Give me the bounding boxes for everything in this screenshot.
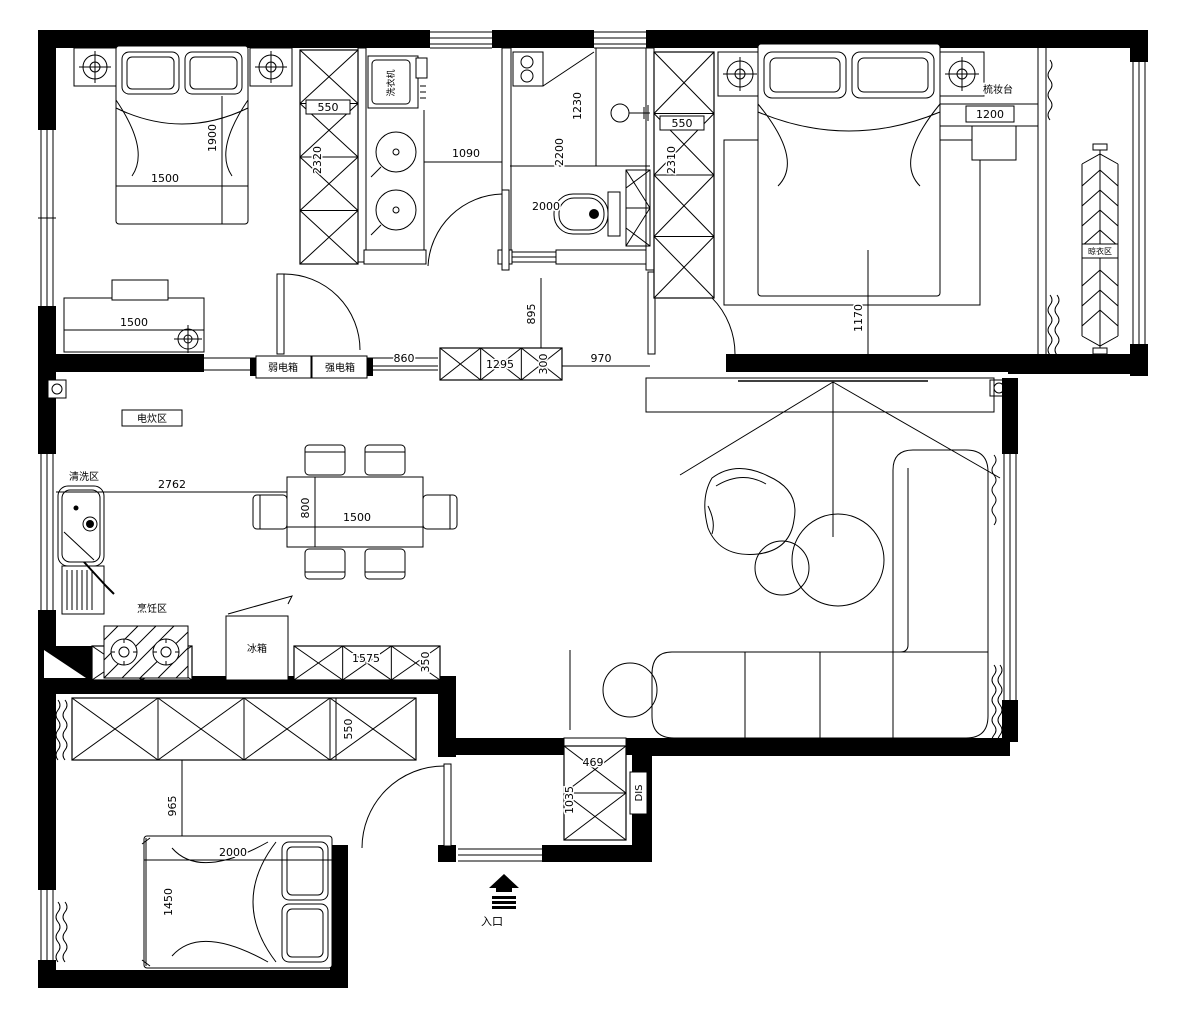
dim-hall-cabinet: 1295	[486, 358, 514, 371]
laundry-tub	[371, 190, 416, 235]
dim-wardrobe1-length: 2320	[311, 146, 324, 174]
wardrobe2	[654, 52, 714, 298]
strong-current-box-label: 强电箱	[325, 361, 355, 374]
dim-hall-c: 895	[525, 304, 538, 325]
balcony: 晾衣区	[1048, 60, 1118, 355]
dining-chair	[423, 495, 457, 529]
floor-plan-drawing: 1500 1900 1500 550 2320 洗衣机	[0, 0, 1200, 1014]
dis-label: DIS	[634, 785, 645, 802]
laundry-door	[428, 190, 509, 270]
dim-kitchen-span: 2762	[158, 478, 186, 491]
bathroom: 1230 2200 2000	[513, 52, 650, 246]
laundry-room: 洗衣机 1090	[368, 56, 509, 270]
kitchen-sink	[58, 486, 104, 566]
fridge: 冰箱	[226, 596, 292, 680]
floor-plan-page: 1500 1900 1500 550 2320 洗衣机	[0, 0, 1200, 1014]
dining-chair	[365, 445, 405, 475]
double-bed	[758, 44, 940, 296]
dining-area: 800 1500	[253, 445, 457, 579]
dim-wardrobe2-length: 2310	[665, 146, 678, 174]
dim-bed2-side: 1170	[852, 304, 865, 332]
side-table	[603, 663, 657, 717]
living-room	[570, 378, 1008, 745]
bedroom1-door	[277, 274, 360, 354]
dim-room3-gap: 965	[166, 796, 179, 817]
desk: 1500	[64, 280, 204, 353]
curtain-squiggle	[1048, 295, 1052, 355]
curtain-squiggle	[56, 700, 60, 760]
laundry-tub	[371, 132, 416, 177]
weak-current-box-label: 弱电箱	[268, 361, 298, 374]
dining-chair	[305, 445, 345, 475]
dim-table-depth: 800	[299, 498, 312, 519]
curtain-squiggle	[63, 902, 67, 962]
wash-basin	[513, 52, 594, 86]
dim-dresser-width: 1200	[976, 108, 1004, 121]
dim-entry-cabinet-w: 469	[583, 756, 604, 769]
drying-rack: 晾衣区	[1082, 144, 1118, 354]
drying-area-label: 晾衣区	[1088, 246, 1112, 256]
dining-table: 800 1500	[287, 477, 423, 547]
dim-bed3-length: 2000	[219, 846, 247, 859]
shower-head-icon	[611, 104, 650, 122]
washing-area-label: 清洗区	[69, 470, 99, 483]
dim-bath-depth: 2200	[553, 138, 566, 166]
entrance-label: 入口	[481, 915, 503, 928]
wardrobe1	[300, 50, 358, 264]
dim-entry-cabinet-h: 1035	[563, 786, 576, 814]
wardrobe3	[72, 698, 416, 760]
bedroom3-door	[362, 764, 451, 848]
curtain-squiggle	[1048, 60, 1052, 120]
tv-cabinet	[646, 378, 1008, 537]
dim-bath-width: 2000	[532, 200, 560, 213]
curtain-squiggle	[992, 455, 996, 525]
dim-table-width: 1500	[343, 511, 371, 524]
dim-cabinet2-depth: 350	[419, 652, 432, 673]
curtain-squiggle	[63, 700, 67, 760]
dim-desk-width: 1500	[120, 316, 148, 329]
dim-hall-b: 970	[591, 352, 612, 365]
dim-bed1-width: 1500	[151, 172, 179, 185]
dining-chair	[365, 549, 405, 579]
bedroom3: 965 2000 1450	[56, 760, 332, 968]
cutting-board	[62, 562, 114, 614]
washing-machine-label: 洗衣机	[385, 69, 397, 96]
armchair	[705, 468, 795, 554]
fridge-label: 冰箱	[247, 642, 267, 655]
dim-laundry-width: 1090	[452, 147, 480, 160]
coffee-table-large	[792, 514, 884, 606]
curtain-squiggle	[1055, 295, 1059, 355]
cooking-area-label: 烹饪区	[137, 602, 167, 615]
dim-bed1-length: 1900	[206, 124, 219, 152]
washing-machine: 洗衣机	[368, 56, 427, 108]
dim-hall-a: 860	[394, 352, 415, 365]
dim-bed3-width: 1450	[162, 888, 175, 916]
curtain-squiggle	[998, 665, 1002, 745]
dim-wardrobe3-depth: 550	[342, 719, 355, 740]
dressing-table-label: 梳妆台	[983, 83, 1013, 96]
curtain-squiggle	[56, 902, 60, 962]
curtain-squiggle	[992, 665, 996, 745]
entrance-arrow-icon	[489, 874, 519, 909]
dim-bath-shower: 1230	[571, 92, 584, 120]
toilet	[554, 192, 620, 236]
dim-hall-cabinet-depth: 300	[537, 354, 550, 375]
gas-stove	[104, 626, 188, 678]
dim-wardrobe2-depth: 550	[672, 117, 693, 130]
dim-cabinet2-width: 1575	[352, 652, 380, 665]
dining-chair	[305, 549, 345, 579]
double-bed	[116, 46, 248, 224]
sofa	[652, 450, 988, 738]
dim-wardrobe1-depth: 550	[318, 101, 339, 114]
dining-chair	[253, 495, 287, 529]
electric-cooking-label: 电炊区	[137, 412, 167, 425]
